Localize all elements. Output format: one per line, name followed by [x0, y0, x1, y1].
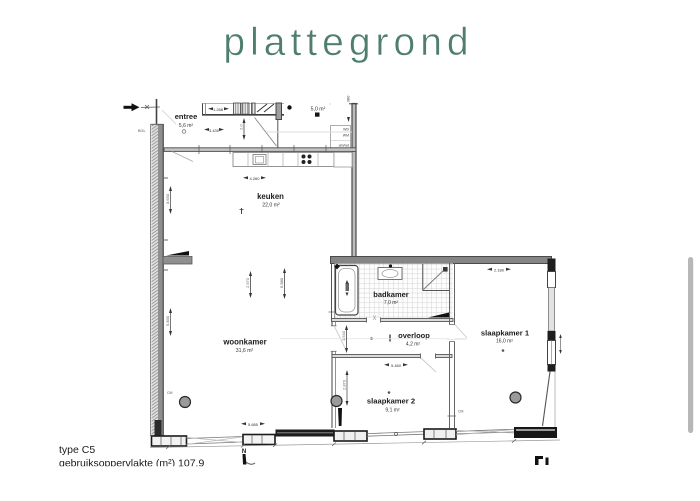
- svg-text:1.288: 1.288: [213, 107, 224, 112]
- svg-text:“: “: [329, 102, 331, 107]
- svg-text:3.430: 3.430: [209, 128, 220, 133]
- svg-text:4.260: 4.260: [249, 176, 260, 181]
- svg-text:badkamer: badkamer: [373, 290, 409, 299]
- svg-text:7,0 m²: 7,0 m²: [384, 300, 399, 306]
- svg-text:2.870: 2.870: [342, 379, 347, 390]
- svg-text:5.580: 5.580: [279, 277, 284, 288]
- svg-text:22,0 m²: 22,0 m²: [262, 203, 280, 209]
- svg-text:9,1 m²: 9,1 m²: [385, 408, 400, 414]
- svg-text:slaapkamer 1: slaapkamer 1: [481, 329, 530, 338]
- svg-text:BGL: BGL: [138, 129, 146, 133]
- svg-text:5.460: 5.460: [391, 363, 402, 368]
- svg-text:5,0 m²: 5,0 m²: [311, 107, 326, 113]
- svg-text:woonkamer: woonkamer: [222, 338, 266, 347]
- svg-text:am/wd: am/wd: [339, 144, 349, 148]
- svg-text:5.830: 5.830: [165, 315, 170, 326]
- svg-text:WD: WD: [343, 128, 349, 132]
- svg-text:entree: entree: [175, 112, 198, 121]
- svg-text:WM: WM: [343, 134, 349, 138]
- svg-text:type C5: type C5: [59, 444, 95, 456]
- svg-text:5.685: 5.685: [248, 422, 259, 427]
- svg-text:CM: CM: [167, 391, 173, 395]
- svg-text:2.180: 2.180: [494, 268, 505, 273]
- svg-text:380: 380: [346, 95, 351, 102]
- svg-text:3.630: 3.630: [165, 193, 170, 204]
- svg-text:keuken: keuken: [257, 192, 284, 201]
- svg-text:slaapkamer 2: slaapkamer 2: [367, 397, 415, 406]
- svg-text:4,2 m²: 4,2 m²: [406, 342, 421, 348]
- svg-text:5,6 m²: 5,6 m²: [179, 123, 194, 129]
- svg-text:16,0 m²: 16,0 m²: [496, 338, 513, 344]
- svg-text:CM: CM: [458, 410, 464, 414]
- svg-text:2.0: 2.0: [239, 124, 244, 130]
- svg-text:2.970: 2.970: [245, 277, 250, 288]
- svg-text:1.540: 1.540: [341, 330, 346, 341]
- svg-text:31,6 m²: 31,6 m²: [236, 348, 254, 354]
- svg-text:gebruiksoppervlakte (m²) 107,: gebruiksoppervlakte (m²) 107,9: [59, 458, 204, 470]
